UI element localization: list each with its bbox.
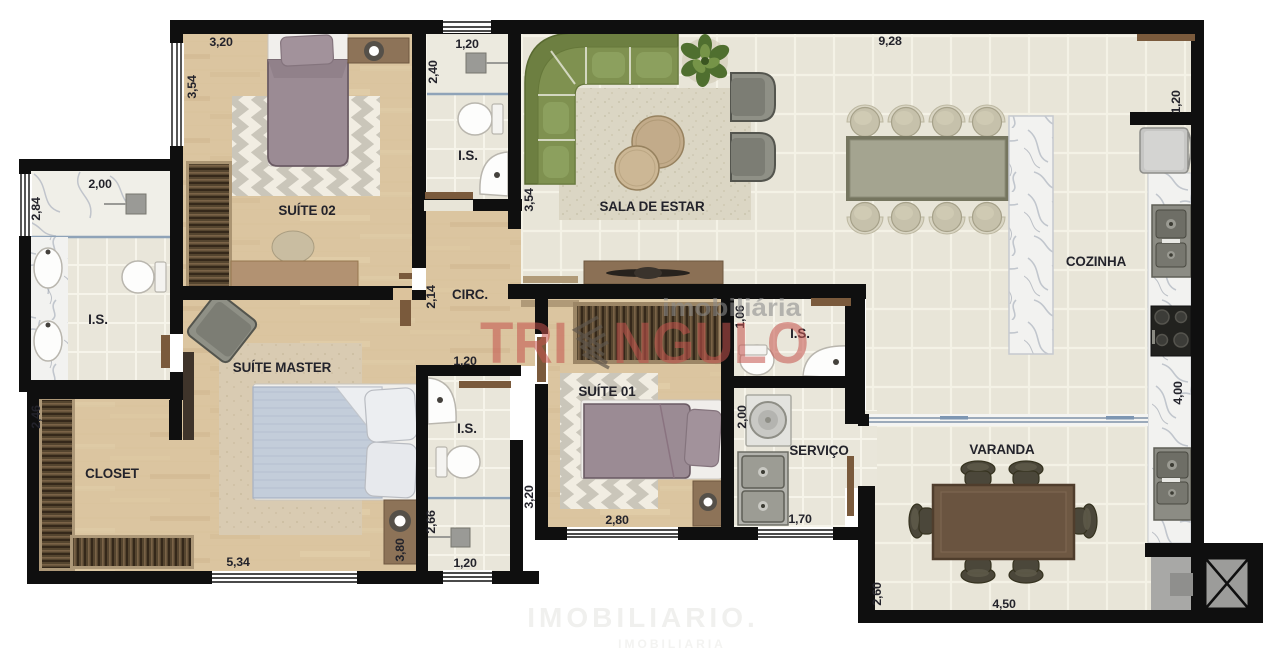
svg-text:1,20: 1,20 bbox=[455, 37, 479, 51]
svg-text:CLOSET: CLOSET bbox=[85, 466, 140, 481]
svg-text:SUÍTE 01: SUÍTE 01 bbox=[578, 384, 636, 399]
svg-text:1,20: 1,20 bbox=[453, 354, 477, 368]
svg-text:IMOBILIARIO.: IMOBILIARIO. bbox=[527, 602, 759, 633]
svg-text:4,00: 4,00 bbox=[1171, 381, 1185, 405]
svg-text:SUÍTE MASTER: SUÍTE MASTER bbox=[233, 360, 332, 375]
svg-text:2,00: 2,00 bbox=[88, 177, 112, 191]
svg-text:1,20: 1,20 bbox=[1169, 90, 1183, 114]
svg-text:I.S.: I.S. bbox=[457, 421, 477, 436]
svg-text:2,46: 2,46 bbox=[29, 405, 43, 429]
svg-text:2,14: 2,14 bbox=[424, 285, 438, 309]
svg-text:I.S.: I.S. bbox=[458, 148, 478, 163]
svg-text:1,20: 1,20 bbox=[453, 556, 477, 570]
svg-text:3,54: 3,54 bbox=[185, 75, 199, 99]
svg-text:3,20: 3,20 bbox=[522, 485, 536, 509]
svg-text:IMOBILIARIA: IMOBILIARIA bbox=[618, 637, 726, 651]
svg-text:2,00: 2,00 bbox=[735, 405, 749, 429]
svg-text:2,40: 2,40 bbox=[426, 60, 440, 84]
svg-text:2,84: 2,84 bbox=[29, 197, 43, 221]
svg-text:3,80: 3,80 bbox=[393, 538, 407, 562]
svg-text:CIRC.: CIRC. bbox=[452, 287, 488, 302]
svg-text:2,80: 2,80 bbox=[605, 513, 629, 527]
svg-text:2,60: 2,60 bbox=[870, 582, 884, 606]
svg-text:I.S.: I.S. bbox=[88, 312, 108, 327]
svg-text:COZINHA: COZINHA bbox=[1066, 254, 1127, 269]
svg-text:SALA DE ESTAR: SALA DE ESTAR bbox=[599, 199, 705, 214]
svg-text:5,34: 5,34 bbox=[226, 555, 250, 569]
svg-text:NGULO: NGULO bbox=[613, 311, 809, 376]
svg-text:3,54: 3,54 bbox=[522, 188, 536, 212]
svg-text:TRI: TRI bbox=[480, 311, 568, 376]
svg-text:1,70: 1,70 bbox=[788, 512, 812, 526]
svg-text:2,66: 2,66 bbox=[424, 510, 438, 534]
svg-text:4,50: 4,50 bbox=[992, 597, 1016, 611]
svg-text:SERVIÇO: SERVIÇO bbox=[789, 443, 848, 458]
svg-text:SUÍTE 02: SUÍTE 02 bbox=[278, 203, 335, 218]
svg-text:VARANDA: VARANDA bbox=[969, 442, 1035, 457]
svg-text:3,20: 3,20 bbox=[209, 35, 233, 49]
svg-text:9,28: 9,28 bbox=[878, 34, 902, 48]
